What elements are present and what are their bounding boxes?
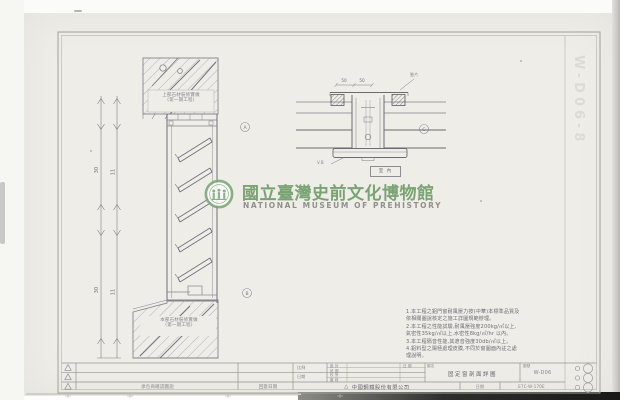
titleblock-date-label: 回簽日期 bbox=[246, 385, 290, 390]
approval-row-approve: 審 核 bbox=[330, 378, 339, 382]
scan-margin-top bbox=[0, 0, 620, 13]
titleblock-desc-label: 承包商確認圖說 bbox=[100, 385, 215, 390]
watermark: 國立臺灣史前文化博物館 NATIONAL MUSEUM OF PREHISTOR… bbox=[204, 178, 444, 222]
note-line: 3.本工程隔音性能,其遮音強度30db/㎡以上。 bbox=[406, 339, 571, 346]
approval-row-check: 校 對 bbox=[330, 373, 339, 377]
drawing-title: 固定窗剖面詳圖 bbox=[425, 370, 520, 378]
detail-bottom-label: V.B bbox=[317, 161, 324, 166]
detail-top-label: 墊片 bbox=[410, 73, 418, 78]
scale-label: 比例 bbox=[297, 366, 305, 371]
general-notes: 1.本工程之鋁門窗耐風壓力按(中華)本標準品質及 依相關圖說核定之施工詳圖規範辦… bbox=[406, 309, 571, 361]
drawing-number: W-D06 bbox=[520, 371, 565, 377]
note-line: 4.鋁料型之陽極處理皮膜,不同於窗圖面內註之處 bbox=[406, 346, 571, 353]
scan-smudge bbox=[0, 182, 5, 244]
scanned-drawing-sheet: 30 11 30 11 A B C bbox=[0, 0, 620, 400]
drawing-number-label: 圖號 bbox=[523, 364, 530, 368]
company-name: 中國鋼鐵股份有限公司 bbox=[352, 384, 410, 391]
museum-logo-icon bbox=[204, 179, 234, 209]
scan-shadow-bottom bbox=[298, 392, 620, 400]
top-box-label: 上部石材裝修實做 (第一期工程) bbox=[150, 93, 212, 104]
approval-row-design: 設 計 bbox=[330, 364, 339, 368]
date2-label: 日期 bbox=[297, 375, 305, 380]
sub-drawing-number: E7C-W-170E bbox=[500, 385, 563, 390]
detail-caption-box: 室 內 bbox=[370, 166, 401, 177]
company-logo-triangle: △ bbox=[344, 384, 349, 390]
note-line: 理說明。 bbox=[406, 353, 571, 360]
note-line: 氣密性35kg/㎡以上,水密性8kg/㎡/hr 以內。 bbox=[406, 331, 571, 338]
bottom-box-label-line2: (第一期工程) bbox=[142, 323, 216, 328]
drawing-title-label: 圖名 bbox=[427, 364, 434, 368]
bottom-box-label: 本部石材裝修實做 (第一期工程) bbox=[142, 318, 216, 329]
scan-speck bbox=[480, 200, 482, 202]
watermark-title-en: NATIONAL MUSEUM OF PREHISTORY bbox=[243, 201, 442, 210]
company-row: △ 中國鋼鐵股份有限公司 bbox=[296, 384, 458, 391]
approval-date-label: 日 期 bbox=[403, 364, 412, 368]
scan-speck bbox=[520, 60, 522, 62]
scan-edge-right bbox=[612, 0, 620, 400]
paper-edge-line bbox=[26, 393, 301, 395]
top-box-label-line2: (第一期工程) bbox=[150, 98, 212, 103]
margin-drawing-code: W-D06-8 bbox=[571, 55, 586, 165]
note-line: 依相關圖說核定之施工詳圖規範辦理。 bbox=[406, 316, 571, 323]
date-small-label: 日期 bbox=[462, 385, 498, 390]
scan-speck bbox=[90, 150, 92, 152]
scan-speck bbox=[74, 10, 82, 12]
